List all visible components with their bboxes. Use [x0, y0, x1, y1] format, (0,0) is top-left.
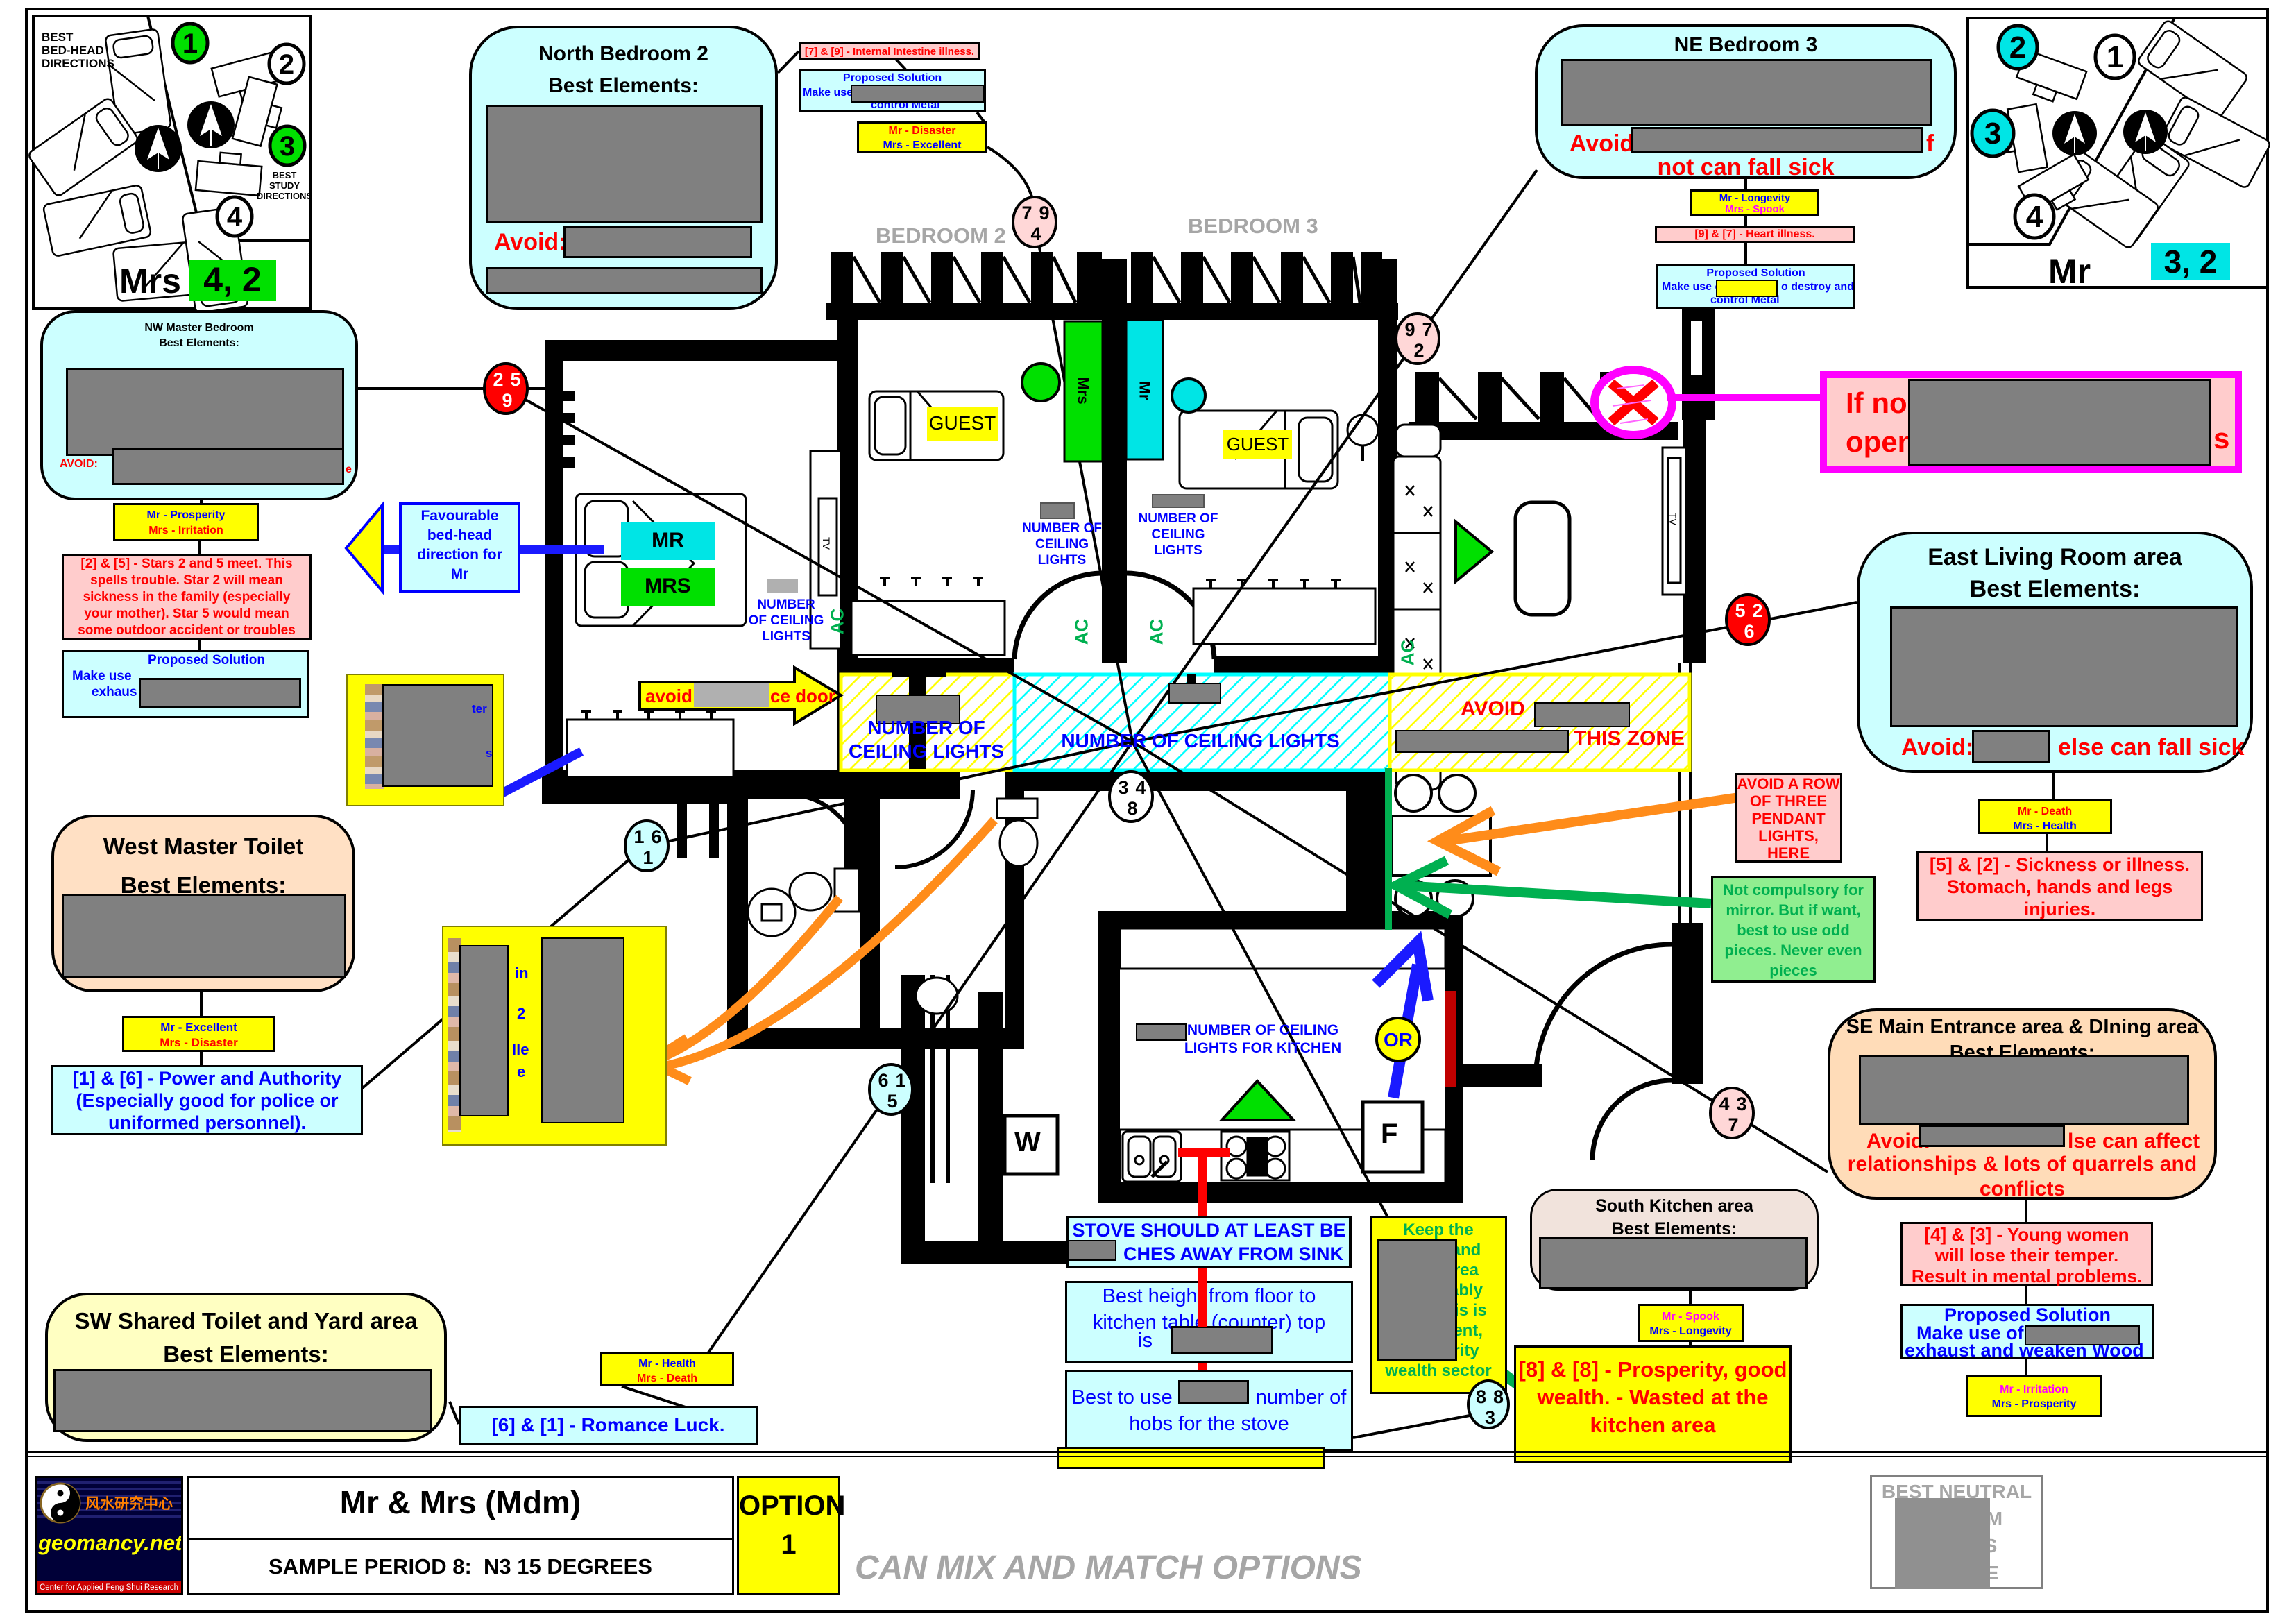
svg-text:3: 3 — [280, 131, 295, 162]
svg-text:5: 5 — [1735, 600, 1745, 621]
svg-text:风水研究中心: 风水研究中心 — [85, 1495, 173, 1512]
svg-text:9: 9 — [1404, 319, 1415, 340]
svg-text:3: 3 — [1118, 777, 1128, 798]
svg-text:4: 4 — [227, 202, 243, 232]
svg-text:2: 2 — [1413, 340, 1424, 361]
svg-text:3: 3 — [1984, 117, 2001, 151]
svg-text:3: 3 — [1736, 1094, 1746, 1114]
svg-text:geomancy.net: geomancy.net — [37, 1531, 181, 1555]
svg-text:7: 7 — [1728, 1114, 1738, 1135]
svg-text:2: 2 — [279, 49, 294, 80]
svg-text:Center for Applied Feng Shui R: Center for Applied Feng Shui Research — [40, 1583, 178, 1592]
svg-text:9: 9 — [502, 390, 512, 411]
svg-text:1: 1 — [2107, 40, 2123, 74]
svg-text:2: 2 — [1752, 600, 1762, 621]
svg-text:4: 4 — [1030, 223, 1041, 244]
svg-text:9: 9 — [1039, 203, 1049, 223]
svg-text:6: 6 — [878, 1070, 888, 1091]
svg-text:6: 6 — [651, 826, 661, 847]
svg-text:6: 6 — [1744, 621, 1754, 642]
svg-text:1: 1 — [182, 28, 198, 59]
svg-text:2: 2 — [493, 369, 503, 390]
svg-text:7: 7 — [1422, 319, 1432, 340]
svg-text:7: 7 — [1021, 203, 1032, 223]
svg-text:5: 5 — [510, 369, 520, 390]
svg-text:4: 4 — [2026, 200, 2043, 234]
svg-text:1: 1 — [643, 847, 653, 868]
svg-text:4: 4 — [1135, 777, 1146, 798]
svg-text:5: 5 — [887, 1091, 897, 1112]
svg-text:8: 8 — [1127, 798, 1137, 819]
svg-text:1: 1 — [633, 826, 644, 847]
svg-text:2: 2 — [2009, 31, 2026, 65]
svg-text:4: 4 — [1719, 1094, 1729, 1114]
svg-text:1: 1 — [895, 1070, 905, 1091]
